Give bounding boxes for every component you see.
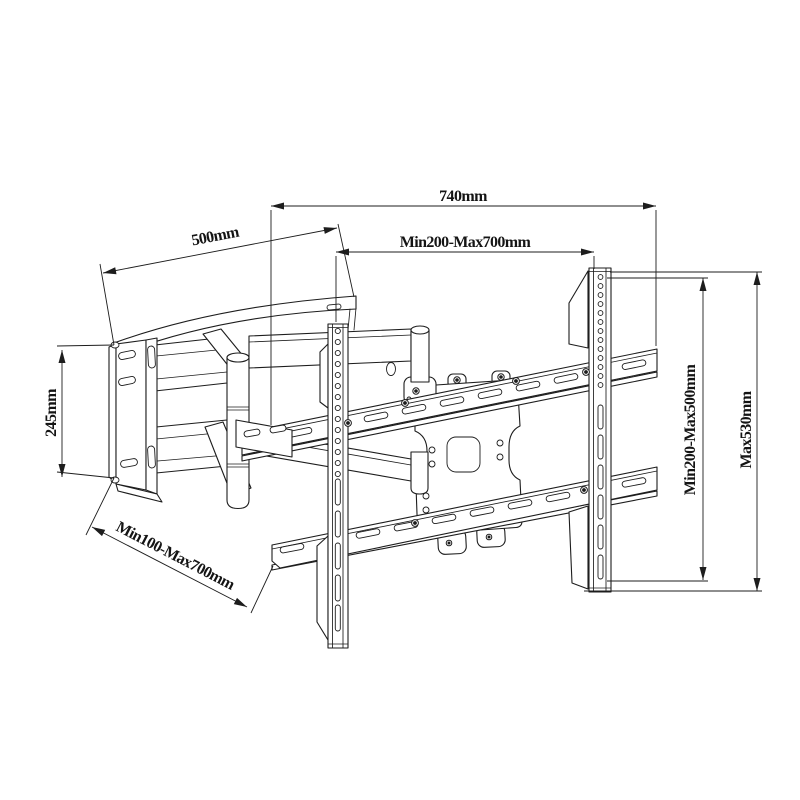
- vesa-pivot-lower: [411, 452, 428, 494]
- wall-plate: [109, 338, 162, 502]
- technical-drawing: 740mm Min200-Max700mm 500mm 245mm Min100…: [0, 0, 800, 800]
- dim-label-min100-max700mm: Min100-Max700mm: [113, 519, 238, 595]
- dim-label-740mm: 740mm: [439, 188, 488, 205]
- dim-label-245mm: 245mm: [43, 388, 60, 437]
- dim-label-min200-max500mm: Min200-Max500mm: [682, 363, 699, 495]
- left-tv-bracket: [317, 324, 348, 648]
- dim-label-min200-max700mm: Min200-Max700mm: [400, 234, 532, 251]
- left-bracket-slots: [335, 479, 340, 631]
- dimension-wall-plate-height: 245mm: [43, 345, 114, 478]
- vesa-center-hole: [447, 437, 480, 472]
- dim-label-max530mm: Max530mm: [738, 390, 755, 468]
- dim-label-500mm: 500mm: [190, 223, 241, 249]
- dimension-mounting-width: Min200-Max700mm: [336, 234, 594, 322]
- right-tv-bracket: [569, 268, 611, 592]
- dimension-arm-extension: 500mm: [100, 223, 354, 345]
- dimension-bracket-height-range: Min200-Max500mm: [607, 278, 708, 581]
- wall-mount-drawing: 740mm Min200-Max700mm 500mm 245mm Min100…: [0, 0, 800, 800]
